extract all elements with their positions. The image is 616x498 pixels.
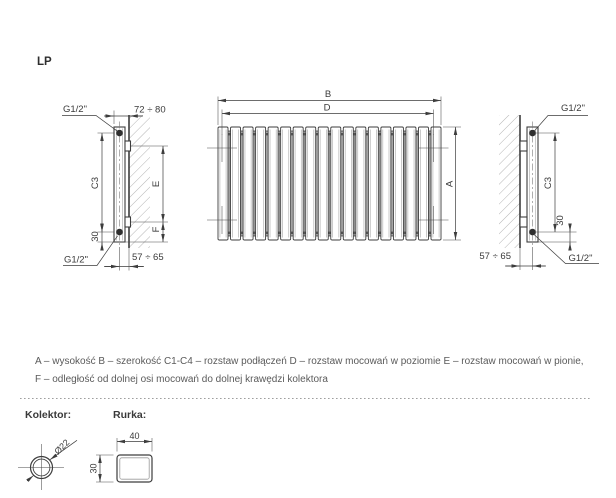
mount-bracket [520,217,527,227]
legend: A – wysokość B – szerokość C1-C4 – rozst… [35,356,584,385]
wall-hatch-left [129,115,150,248]
dim-label-b: B [325,89,331,100]
dim-label-d: D [324,103,331,114]
kolektor-section-label: Kolektor: [25,409,71,421]
dim-label-wall-axis-right: 57 ÷ 65 [479,251,511,262]
connection-point [529,229,536,236]
wall-hatch-right [499,115,520,248]
technical-drawing-page: LP G1/2" 72 ÷ 80 C3 30 [0,0,616,498]
dim-label-30-left: 30 [90,231,101,242]
dim-label-30-right: 30 [555,215,566,226]
dim-label-e: E [151,181,162,187]
dim-label-rurka-height: 30 [89,463,99,473]
dim-label-c3-left: C3 [90,177,101,189]
page-title: LP [37,56,52,68]
right-side-view: G1/2" C3 30 57 ÷ 65 G1/2" [479,103,599,270]
legend-line-2: F – odległość od dolnej osi mocowań do d… [35,374,328,385]
dim-label-kolektor-diameter: Ø22 [52,437,71,456]
dim-label-a: A [445,180,456,187]
left-side-view: G1/2" 72 ÷ 80 C3 30 E F 57 ÷ 65 [62,104,168,271]
front-view: B D A [207,89,461,240]
mount-bracket [125,217,131,227]
rurka-section-label: Rurka: [113,409,146,421]
dim-label-c3-right: C3 [543,177,554,189]
mount-bracket [125,141,131,151]
dim-label-thread-bottom-left: G1/2" [64,255,88,266]
dim-label-wall-axis-left: 57 ÷ 65 [132,252,164,263]
dim-label-f: F [151,226,162,232]
rurka-detail: Rurka: 40 30 [89,409,153,482]
dim-label-thread-bottom-right: G1/2" [569,253,593,264]
dim-label-depth: 72 ÷ 80 [134,105,166,116]
kolektor-detail: Kolektor: Ø22 [18,409,77,490]
connection-point [116,229,123,236]
dim-label-rurka-width: 40 [129,431,139,441]
radiator-slats [218,127,441,240]
legend-line-1: A – wysokość B – szerokość C1-C4 – rozst… [35,356,584,367]
dim-label-thread-top-left: G1/2" [63,104,87,115]
rurka-profile-outer [117,455,152,482]
dim-label-thread-top-right: G1/2" [561,103,585,114]
mount-bracket [520,141,527,151]
